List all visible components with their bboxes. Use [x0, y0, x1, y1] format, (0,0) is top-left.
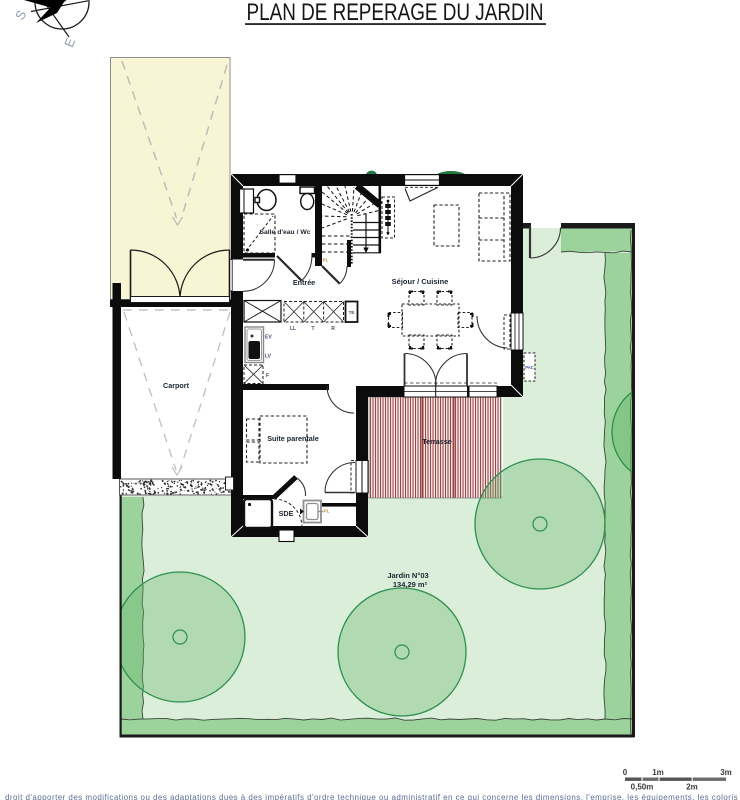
svg-text:SDE: SDE [279, 509, 294, 518]
svg-text:R: R [331, 326, 335, 332]
svg-text:PLAN DE REPERAGE DU JARDIN: PLAN DE REPERAGE DU JARDIN [247, 0, 544, 26]
svg-text:3m: 3m [720, 768, 732, 777]
svg-text:PAC: PAC [525, 365, 534, 370]
svg-text:F: F [266, 373, 269, 379]
svg-text:2m: 2m [686, 783, 698, 792]
svg-text:PL: PL [323, 258, 329, 263]
svg-text:0,50m: 0,50m [631, 783, 654, 792]
svg-text:Séjour / Cuisine: Séjour / Cuisine [392, 277, 449, 286]
svg-text:Salle d'eau / Wc: Salle d'eau / Wc [259, 229, 310, 236]
svg-text:Entrée: Entrée [293, 278, 315, 287]
svg-text:LL: LL [290, 326, 296, 332]
svg-text:Suite parentale: Suite parentale [267, 434, 319, 443]
svg-text:EV: EV [265, 335, 272, 341]
svg-text:134,29 m²: 134,29 m² [393, 580, 428, 589]
svg-text:T: T [311, 326, 314, 332]
svg-text:0: 0 [623, 768, 628, 777]
svg-text:1m: 1m [652, 768, 664, 777]
svg-text:droit d'apporter des modificat: droit d'apporter des modifications ou de… [5, 793, 740, 800]
svg-text:TE: TE [349, 310, 355, 315]
svg-text:LV: LV [265, 354, 272, 360]
svg-text:Jardin N°03: Jardin N°03 [387, 571, 428, 580]
svg-text:Carport: Carport [163, 381, 190, 390]
svg-text:Terrasse: Terrasse [422, 437, 451, 446]
svg-text:PL: PL [324, 509, 330, 514]
